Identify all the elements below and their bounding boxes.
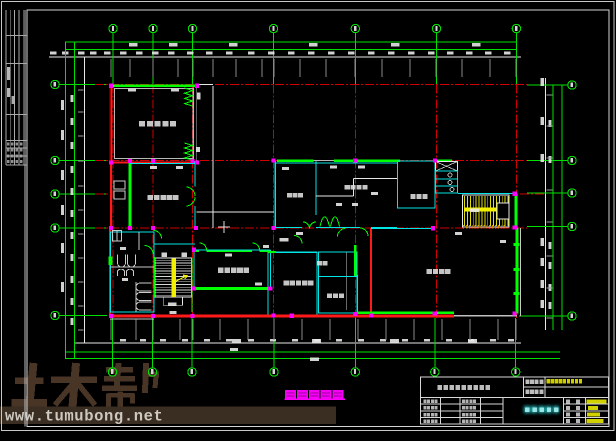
svg-text:www.tumubong.net: www.tumubong.net [5,408,163,426]
